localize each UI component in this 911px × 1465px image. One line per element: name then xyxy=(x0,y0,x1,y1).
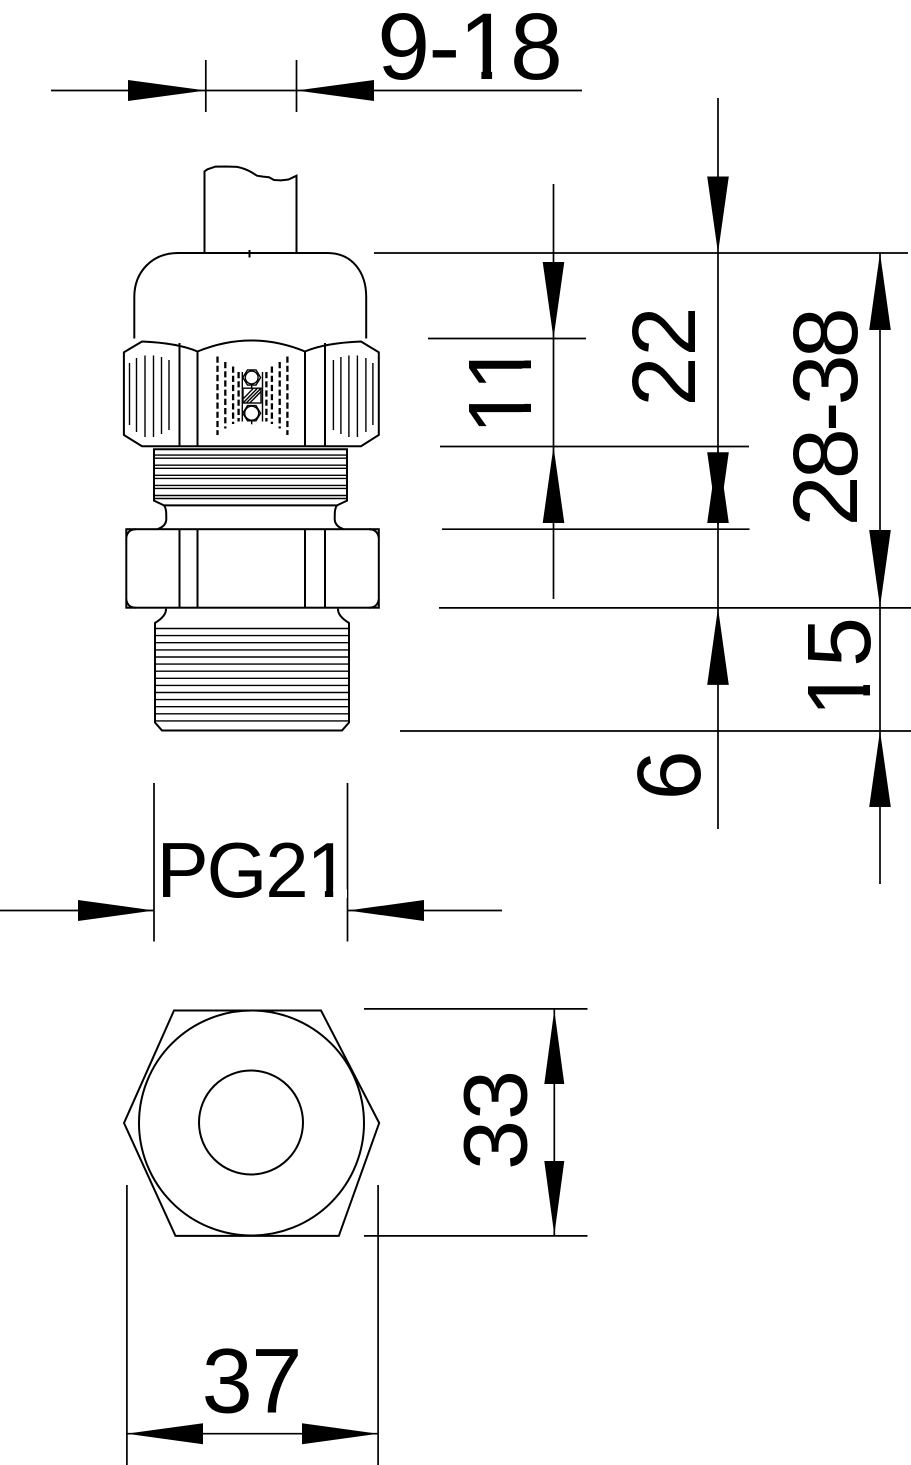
svg-text:15: 15 xyxy=(790,617,890,717)
svg-text:37: 37 xyxy=(202,1331,301,1433)
svg-text:9-18: 9-18 xyxy=(377,0,561,100)
svg-text:33: 33 xyxy=(447,1070,547,1170)
svg-text:6: 6 xyxy=(620,750,720,800)
svg-text:PG21: PG21 xyxy=(157,826,348,914)
svg-text:28-38: 28-38 xyxy=(775,310,877,526)
svg-text:22: 22 xyxy=(615,306,715,406)
svg-text:11: 11 xyxy=(451,341,551,434)
